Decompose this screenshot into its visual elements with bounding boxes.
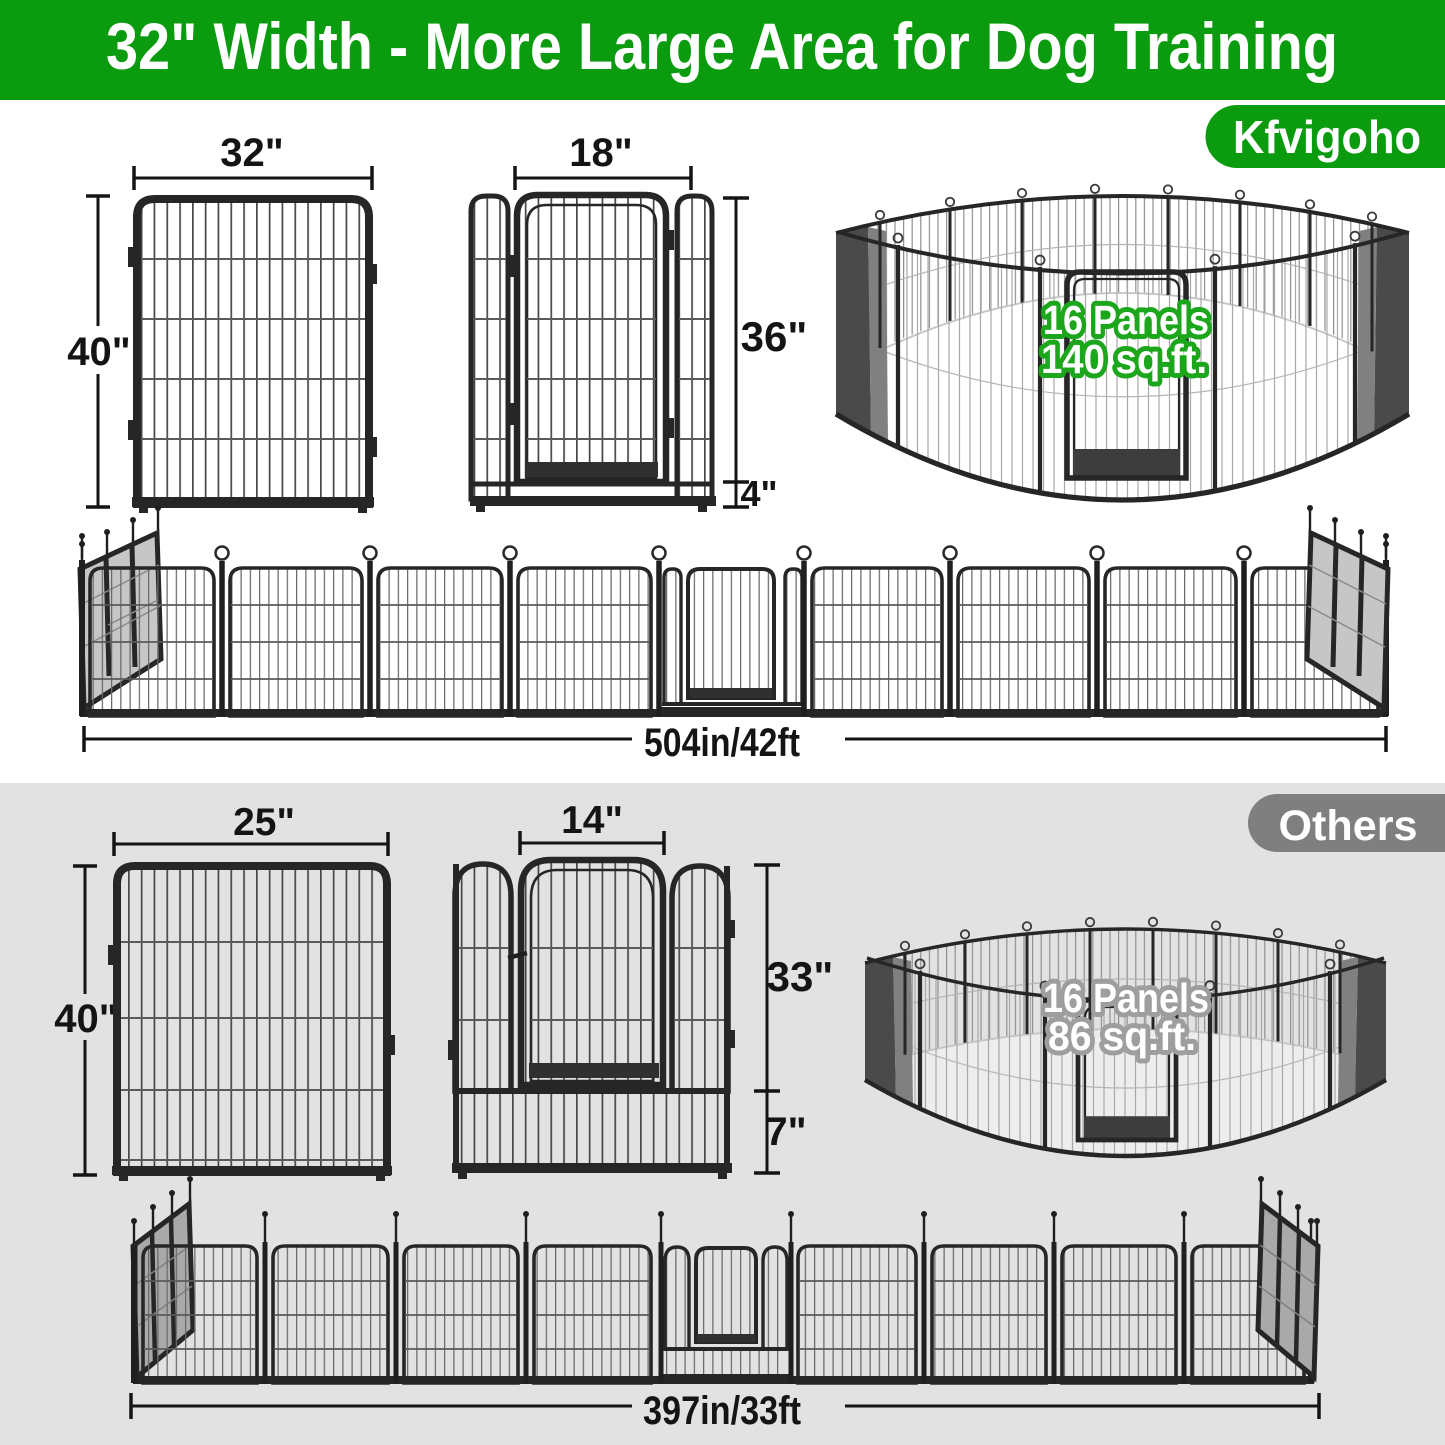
svg-text:504in/42ft: 504in/42ft (644, 721, 800, 765)
svg-text:36": 36" (741, 313, 808, 360)
svg-text:40": 40" (54, 997, 117, 1041)
svg-text:140 sq.ft.: 140 sq.ft. (1041, 336, 1207, 382)
svg-text:18": 18" (569, 131, 632, 175)
svg-text:32": 32" (220, 131, 283, 175)
svg-text:Kfvigoho: Kfvigoho (1233, 111, 1421, 163)
svg-text:Others: Others (1279, 802, 1418, 850)
svg-text:86 sq.ft.: 86 sq.ft. (1048, 1013, 1196, 1059)
svg-text:32" Width - More Large Area fo: 32" Width - More Large Area for Dog Trai… (106, 9, 1338, 83)
svg-text:14": 14" (561, 799, 623, 842)
svg-text:7": 7" (765, 1110, 806, 1154)
svg-text:4": 4" (740, 473, 777, 514)
svg-text:33": 33" (767, 953, 834, 1000)
svg-text:397in/33ft: 397in/33ft (643, 1389, 801, 1433)
svg-text:40": 40" (67, 330, 130, 374)
svg-text:25": 25" (233, 801, 295, 844)
